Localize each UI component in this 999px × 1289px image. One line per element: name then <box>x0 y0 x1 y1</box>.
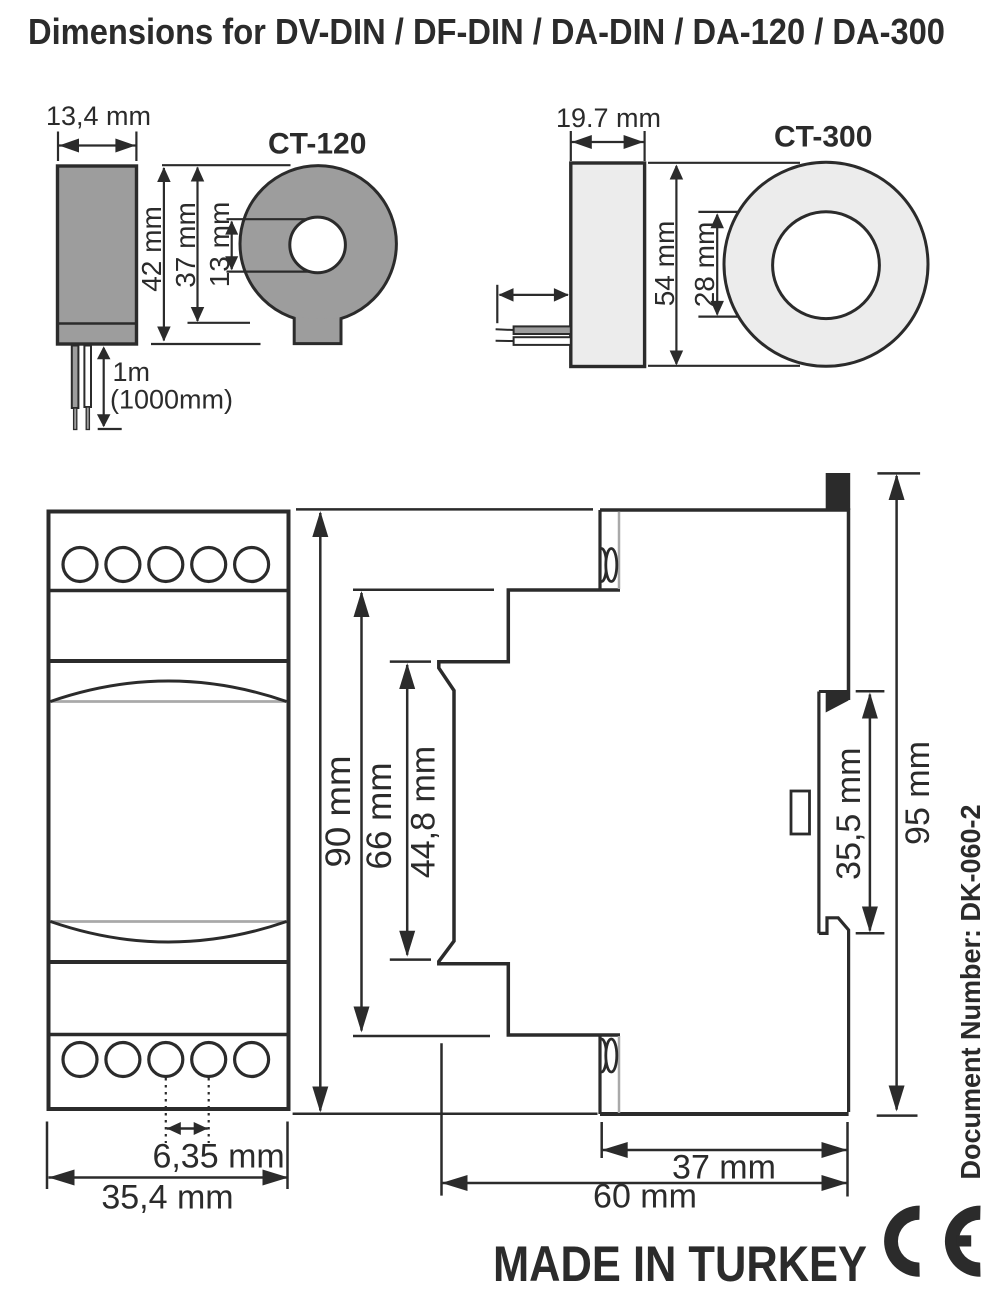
svg-text:35,5 mm: 35,5 mm <box>830 748 868 880</box>
svg-text:28 mm: 28 mm <box>689 222 720 308</box>
svg-text:54 mm: 54 mm <box>649 221 680 307</box>
svg-text:CT-120: CT-120 <box>268 128 366 161</box>
svg-text:19.7 mm: 19.7 mm <box>556 103 661 133</box>
svg-text:MADE IN TURKEY: MADE IN TURKEY <box>493 1236 867 1289</box>
svg-text:60 mm: 60 mm <box>593 1178 697 1216</box>
svg-text:6,35 mm: 6,35 mm <box>152 1138 284 1176</box>
svg-text:44,8 mm: 44,8 mm <box>405 746 443 878</box>
svg-text:35,4 mm: 35,4 mm <box>101 1179 233 1217</box>
svg-text:Document Number: DK-060-2: Document Number: DK-060-2 <box>955 805 986 1180</box>
svg-text:42 mm: 42 mm <box>136 206 167 292</box>
svg-text:CT-300: CT-300 <box>774 121 872 154</box>
svg-text:1m: 1m <box>113 357 151 387</box>
svg-text:13,4 mm: 13,4 mm <box>46 101 151 131</box>
svg-text:Dimensions for DV-DIN / DF-DIN: Dimensions for DV-DIN / DF-DIN / DA-DIN … <box>28 11 945 52</box>
svg-text:(1000mm): (1000mm) <box>110 385 233 415</box>
svg-text:13 mm: 13 mm <box>204 202 235 288</box>
svg-text:95 mm: 95 mm <box>899 741 937 845</box>
svg-text:66 mm: 66 mm <box>360 763 399 870</box>
svg-text:37 mm: 37 mm <box>170 202 201 288</box>
svg-text:90 mm: 90 mm <box>319 756 358 868</box>
